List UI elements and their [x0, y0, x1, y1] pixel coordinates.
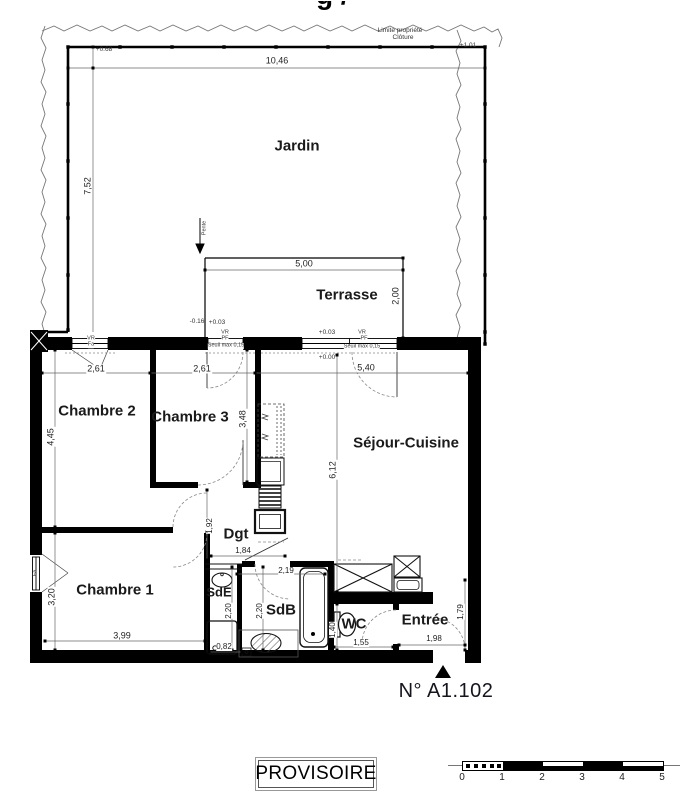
scalebar-tick-3: 3: [579, 772, 585, 783]
garden-fence: [48, 47, 485, 345]
level-garden-left: +0.68: [96, 47, 112, 54]
window3-tag-bottom: PF: [360, 336, 367, 342]
door-arcs: [173, 352, 465, 650]
dim-chambre2-width: 2,61: [86, 365, 106, 374]
windows: [33, 339, 398, 591]
seuil-label-a: Seuil max 0,15: [208, 343, 244, 349]
room-label-dgt: Dgt: [224, 527, 249, 542]
dim-dgt-height: 1,92: [206, 518, 214, 534]
interior-walls: [42, 350, 433, 657]
scalebar-tick-1: 1: [499, 772, 505, 783]
room-label-terrasse: Terrasse: [316, 288, 377, 303]
dim-entree-height: 1,79: [457, 604, 465, 620]
dim-chambre2-height: 4,45: [47, 427, 56, 447]
level-floor: +0.00: [319, 355, 335, 362]
dim-chambre1-width: 3,99: [112, 632, 132, 641]
dim-sejour-width: 5,40: [356, 364, 376, 373]
entrance-marker: [435, 665, 451, 678]
room-label-chambre3: Chambre 3: [151, 410, 229, 425]
floorplan-drawing: [0, 0, 699, 800]
dim-terrasse-width: 5,00: [294, 260, 314, 269]
garden-dimensions: [68, 47, 485, 332]
dim-chambre1-height: 3,20: [48, 587, 57, 607]
window-flaps: [42, 350, 108, 592]
dim-entree-width: 1,98: [426, 635, 442, 643]
window1-tag-bottom: Fa: [88, 342, 94, 348]
room-label-entree: Entrée: [402, 613, 449, 628]
title-fragment: g /: [316, 0, 349, 11]
room-label-sde: SdE: [206, 586, 231, 599]
provisoire-stamp: PROVISOIRE: [255, 757, 377, 791]
room-label-chambre1: Chambre 1: [76, 583, 154, 598]
scalebar-tick-4: 4: [619, 772, 625, 783]
provisoire-stamp-text: PROVISOIRE: [258, 760, 374, 788]
room-label-wc: WC: [342, 617, 367, 632]
cloture-label: Clôture: [393, 35, 414, 42]
room-label-jardin: Jardin: [274, 139, 319, 154]
plan-number: N° A1.102: [399, 681, 494, 701]
floor-plan-page: g / Limite propriété Clôture +0.68 +1.01…: [0, 0, 699, 800]
dim-chambre3-width: 2,61: [192, 365, 212, 374]
pente-label: Pente: [202, 221, 208, 235]
room-label-chambre2: Chambre 2: [58, 404, 136, 419]
kitchen-counter: [334, 556, 422, 592]
room-label-sejour: Séjour-Cuisine: [353, 436, 459, 451]
dim-sdb-width: 2,19: [278, 567, 294, 575]
dim-chambre3-height: 3,48: [239, 409, 248, 429]
dim-sde-height: 2,20: [225, 603, 233, 619]
sde-partition: [205, 564, 242, 569]
dim-jardin-width: 10,46: [265, 57, 290, 66]
level-terrace-out: -0.16: [190, 319, 205, 326]
level-terrace-in: +0.03: [209, 320, 225, 327]
scalebar: [462, 761, 664, 771]
room-label-sdb: SdB: [266, 603, 296, 618]
scalebar-tick-2: 2: [539, 772, 545, 783]
dim-wc-height: 1,40: [329, 622, 337, 638]
dim-dgt-width: 1,84: [235, 547, 251, 555]
dim-wc-width: 1,55: [353, 639, 369, 647]
seuil-label-b: Seuil max 0,15: [344, 344, 380, 350]
dim-sde-width: 0,82: [216, 643, 232, 651]
fence-posts: [66, 45, 486, 345]
window4-tag: Fa: [33, 570, 39, 576]
dim-jardin-height: 7,52: [84, 176, 93, 196]
property-boundary: [41, 25, 502, 338]
level-window-in: +0.03: [319, 330, 335, 337]
level-garden-right: +1.01: [460, 43, 476, 50]
dim-terrasse-height: 2,00: [392, 286, 401, 306]
dim-sdb-height: 2,20: [256, 603, 264, 619]
window2-tag-bottom: PF: [221, 336, 228, 342]
dim-sejour-height: 6,12: [329, 460, 338, 480]
closet: [258, 404, 284, 457]
scalebar-tick-5: 5: [659, 772, 665, 783]
scalebar-tick-0: 0: [459, 772, 465, 783]
